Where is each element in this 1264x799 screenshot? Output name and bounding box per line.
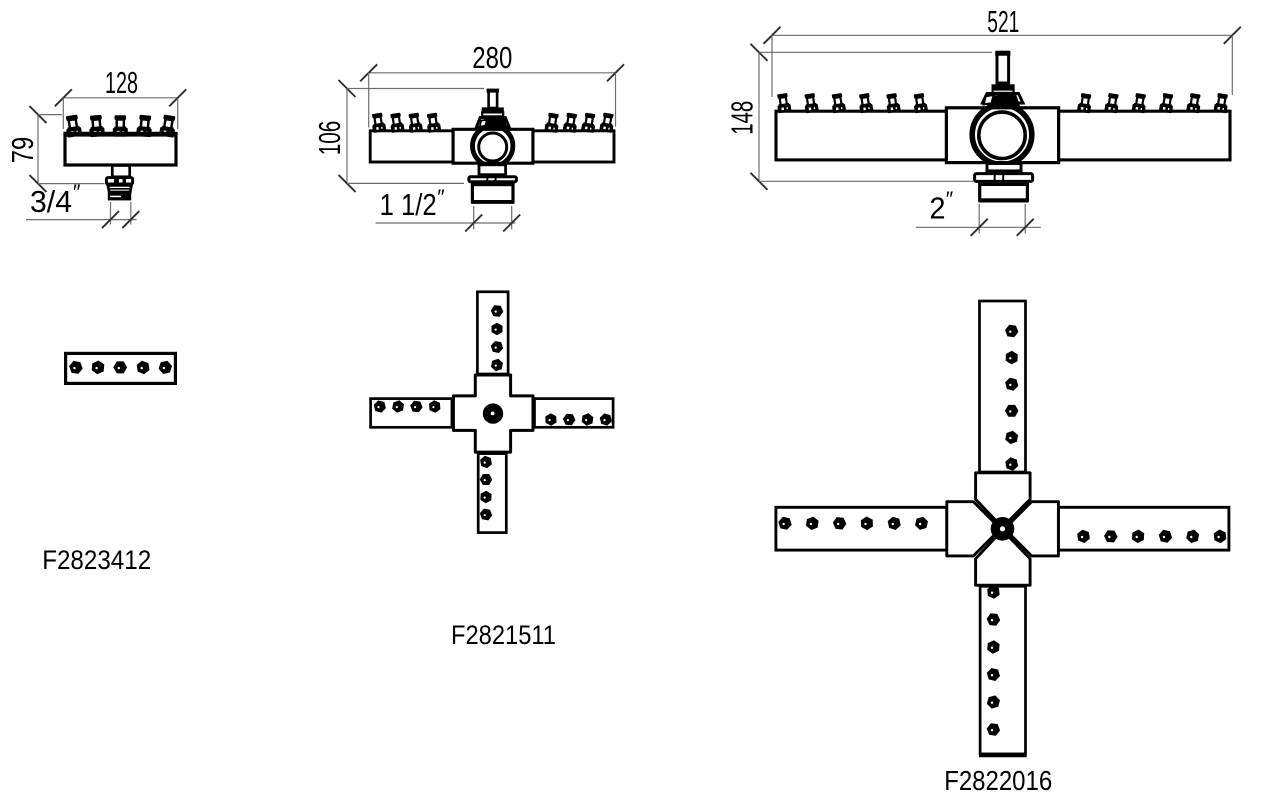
svg-text:521: 521 [987, 4, 1019, 39]
svg-text:106: 106 [312, 121, 347, 156]
svg-text:2: 2 [930, 191, 946, 226]
svg-text:″: ″ [73, 181, 81, 204]
svg-text:79: 79 [5, 137, 40, 164]
svg-text:F2821511: F2821511 [451, 620, 556, 650]
svg-text:F2823412: F2823412 [42, 545, 151, 575]
svg-text:148: 148 [724, 101, 759, 135]
svg-text:F2822016: F2822016 [944, 765, 1052, 796]
svg-text:″: ″ [437, 186, 445, 209]
svg-text:″: ″ [946, 188, 954, 211]
svg-text:128: 128 [105, 65, 138, 100]
svg-text:1 1/2: 1 1/2 [380, 187, 437, 222]
svg-text:280: 280 [472, 40, 512, 75]
svg-text:3/4: 3/4 [30, 184, 72, 219]
